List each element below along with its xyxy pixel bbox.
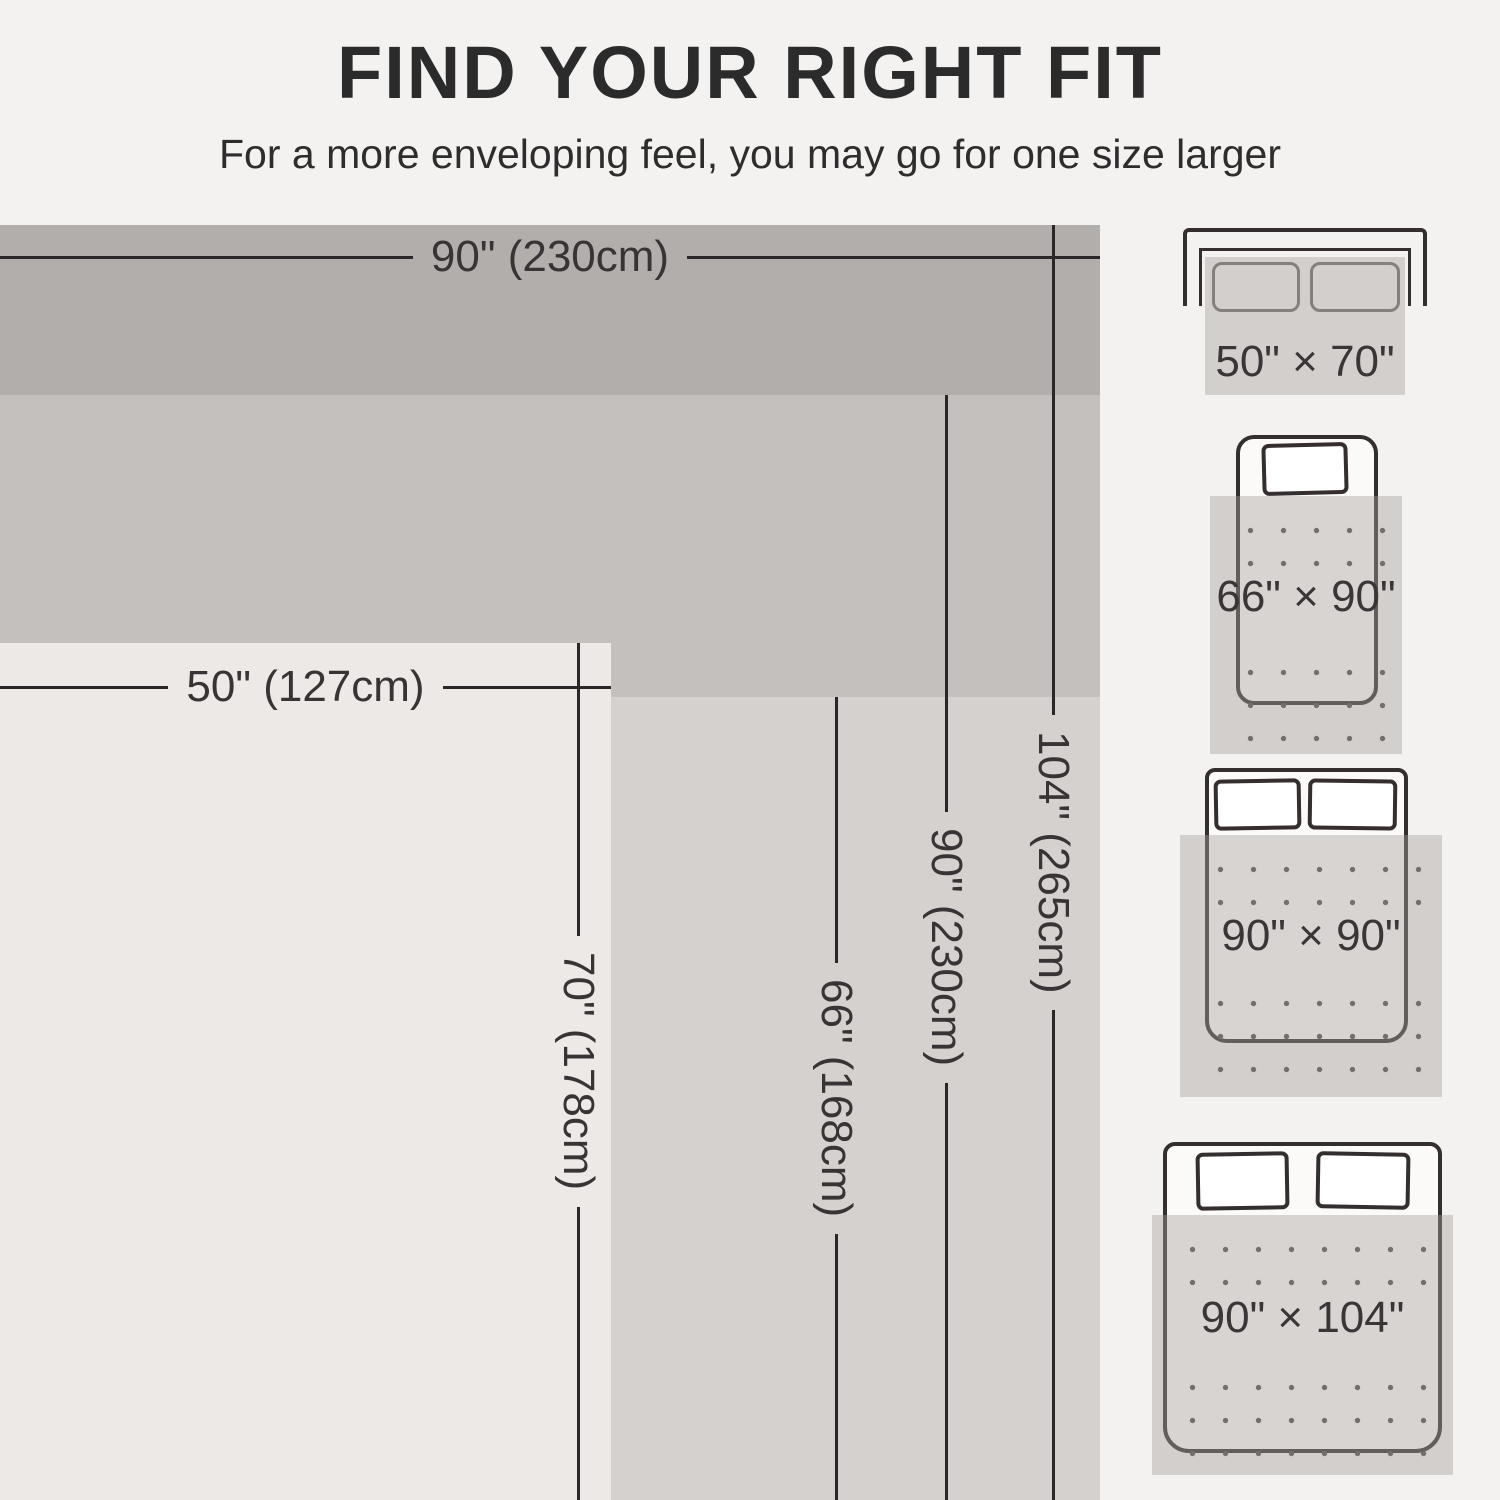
pillow (1308, 778, 1398, 830)
dimension-line (577, 643, 580, 936)
page-title: FIND YOUR RIGHT FIT (0, 30, 1500, 115)
dimension-label: 50" (127cm) (168, 662, 442, 712)
page-subtitle: For a more enveloping feel, you may go f… (0, 131, 1500, 178)
dimension-length-104in: 104" (265cm) (1029, 225, 1077, 1500)
size-label: 90" × 90" (1180, 911, 1442, 961)
dimension-label: 90" (230cm) (413, 232, 687, 282)
blanket-overlay-90x104: 90" × 104" (1152, 1215, 1453, 1475)
size-label: 90" × 104" (1152, 1293, 1453, 1343)
blanket-overlay-50x70: 50" × 70" (1205, 257, 1405, 395)
blanket-overlay-66x90: 66" × 90" (1210, 496, 1402, 754)
quilt-dot-pattern (1222, 504, 1390, 570)
dimension-line (835, 1234, 838, 1500)
dimension-length-90in: 90" (230cm) (922, 395, 970, 1500)
size-guide-infographic: FIND YOUR RIGHT FIT For a more envelopin… (0, 0, 1500, 1500)
dimension-label: 66" (168cm) (811, 963, 861, 1233)
dimension-length-66in: 66" (168cm) (812, 697, 860, 1500)
quilt-dot-pattern (1222, 646, 1390, 746)
pillow (1261, 442, 1348, 496)
dimension-width-90in: 90" (230cm) (0, 231, 1100, 283)
dimension-line (1052, 225, 1055, 715)
dimension-label: 90" (230cm) (921, 812, 971, 1082)
dimension-line (945, 395, 948, 812)
dimension-line (945, 1083, 948, 1500)
dimension-line (835, 697, 838, 963)
blanket-area-50x70 (0, 643, 611, 1500)
quilt-dot-pattern (1164, 1223, 1441, 1295)
quilt-dot-pattern (1164, 1361, 1441, 1467)
dimension-width-50in: 50" (127cm) (0, 661, 611, 713)
dimension-line (0, 686, 168, 689)
dimension-line (577, 1207, 580, 1500)
dimension-length-70in: 70" (178cm) (554, 643, 602, 1500)
quilt-dot-pattern (1192, 977, 1430, 1089)
dimension-line (0, 256, 413, 259)
pillow (1214, 778, 1302, 831)
blanket-overlay-90x90: 90" × 90" (1180, 835, 1442, 1097)
header: FIND YOUR RIGHT FIT For a more envelopin… (0, 0, 1500, 178)
pillow (1196, 1151, 1290, 1211)
pillow (1316, 1151, 1411, 1210)
dimension-label: 104" (265cm) (1028, 715, 1078, 1010)
dimension-label: 70" (178cm) (553, 936, 603, 1206)
quilt-dot-pattern (1192, 843, 1430, 909)
size-label: 50" × 70" (1205, 337, 1405, 387)
dimension-line (1052, 1010, 1055, 1500)
size-label: 66" × 90" (1210, 572, 1402, 622)
